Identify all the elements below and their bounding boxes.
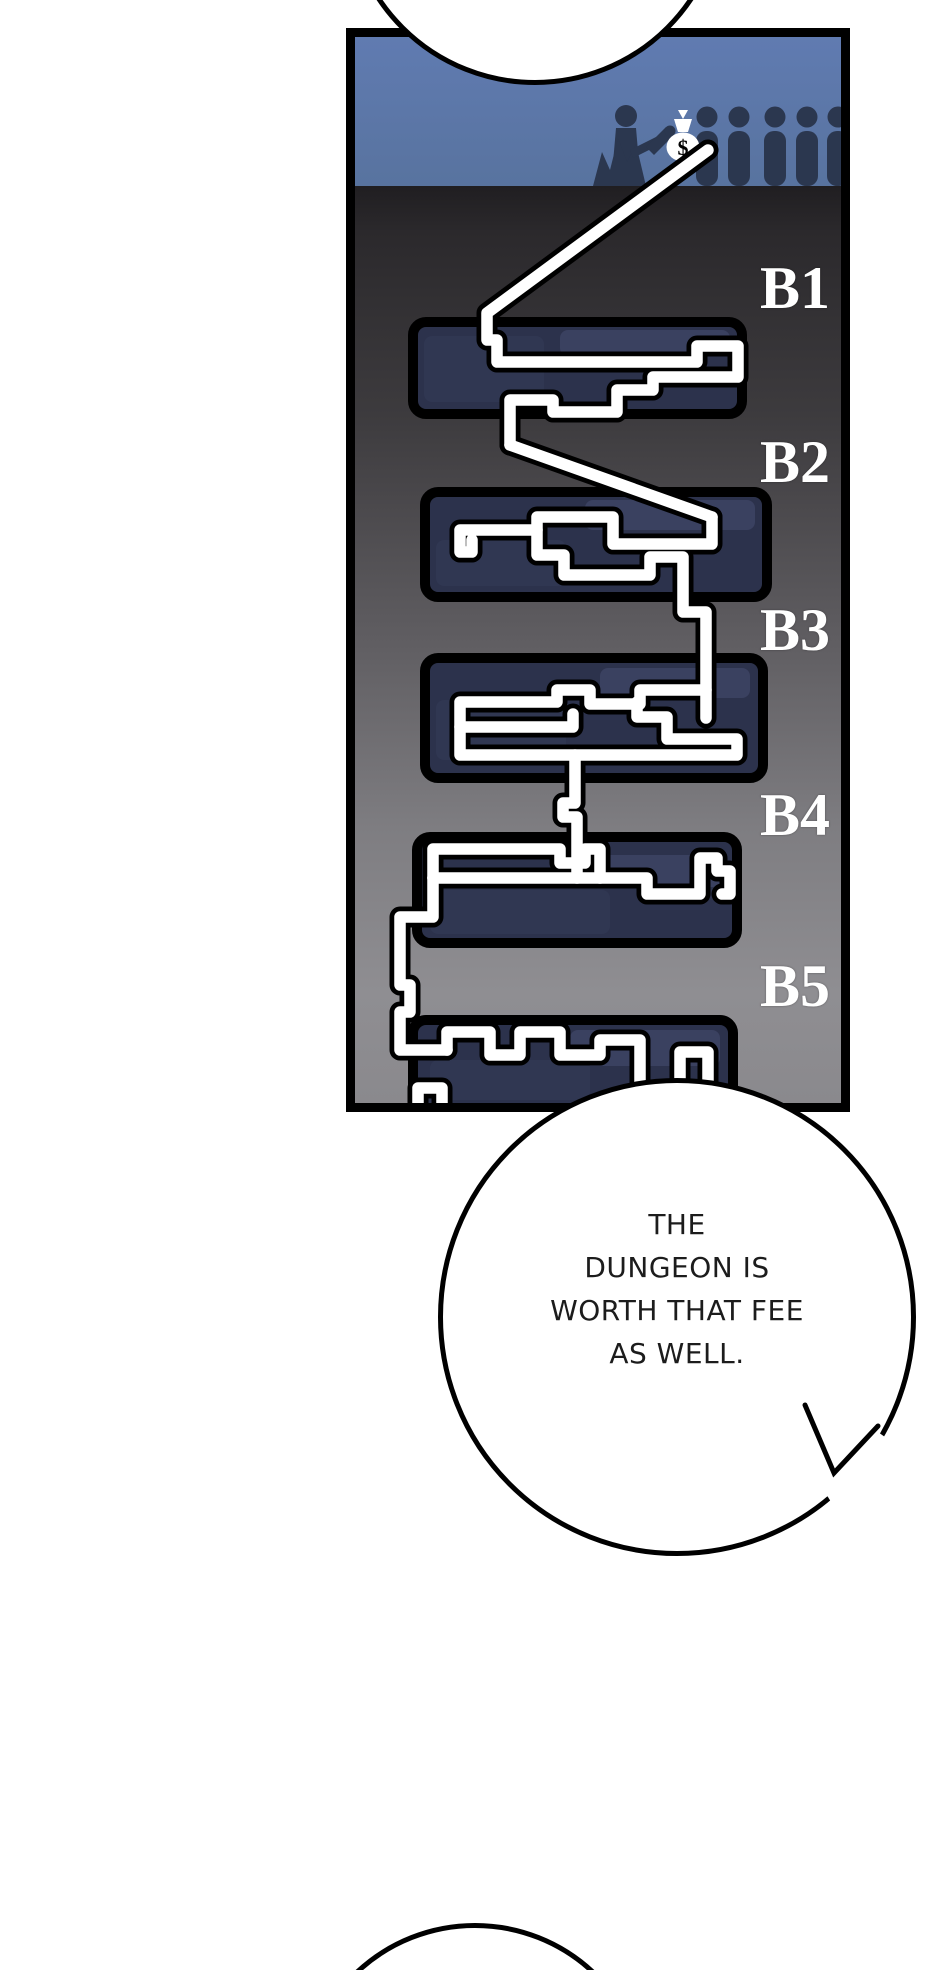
queue-figure bbox=[796, 107, 818, 187]
level-label-b5: B5 bbox=[760, 956, 870, 1016]
level-label-b1: B1 bbox=[760, 258, 870, 318]
level-label-b4: B4 bbox=[760, 785, 870, 845]
queue-figure bbox=[728, 107, 750, 187]
speech-line-4: AS WELL. bbox=[609, 1332, 744, 1375]
queue-figure bbox=[827, 107, 841, 187]
queue-figure bbox=[764, 107, 786, 187]
comic-page: $ bbox=[0, 0, 940, 1970]
speech-line-3: WORTH THAT FEE bbox=[550, 1289, 804, 1332]
speech-text: THE DUNGEON IS WORTH THAT FEE AS WELL. bbox=[443, 1083, 911, 1495]
main-speech-bubble: THE DUNGEON IS WORTH THAT FEE AS WELL. bbox=[438, 1078, 916, 1556]
comic-panel: $ bbox=[346, 28, 850, 1112]
level-label-b3: B3 bbox=[760, 600, 870, 660]
speech-line-2: DUNGEON IS bbox=[584, 1246, 769, 1289]
panel-art: $ bbox=[355, 37, 841, 1103]
bottom-speech-bubble bbox=[300, 1923, 650, 1970]
level-label-b2: B2 bbox=[760, 432, 870, 492]
speech-line-1: THE bbox=[648, 1203, 705, 1246]
